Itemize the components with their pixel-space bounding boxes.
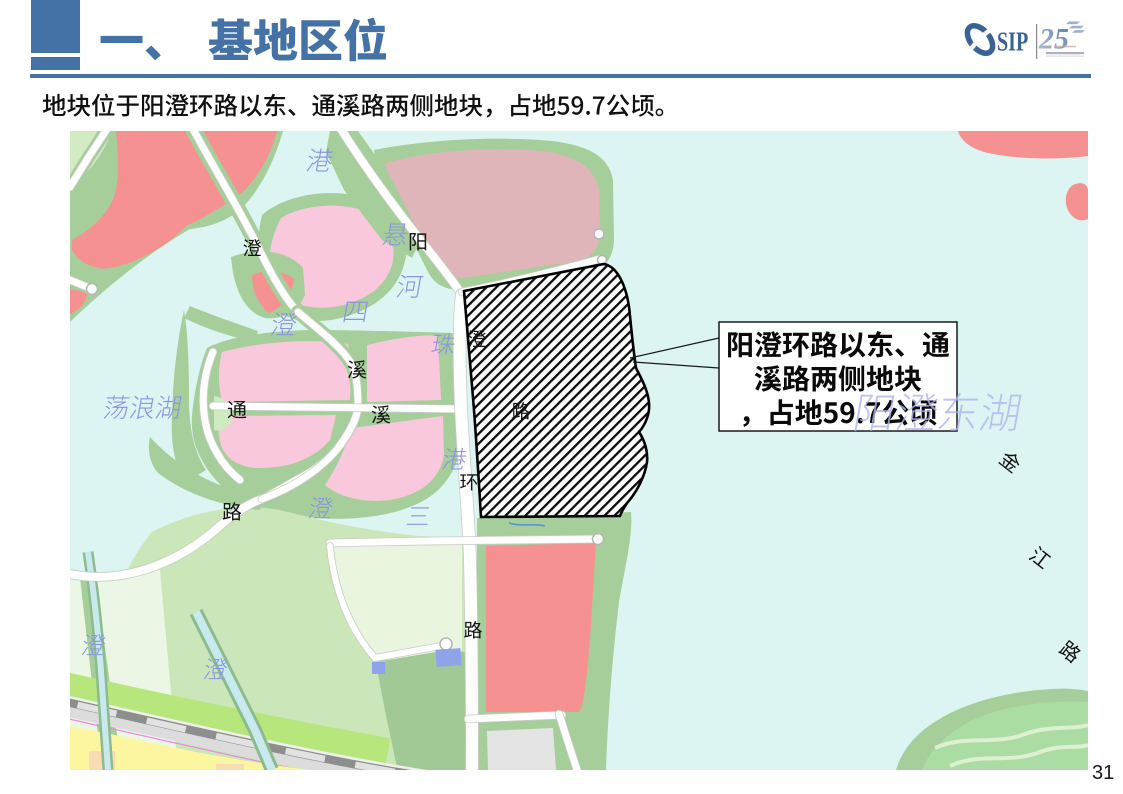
svg-text:25: 25 [1038,23,1069,56]
svg-text:SIP: SIP [997,28,1028,58]
